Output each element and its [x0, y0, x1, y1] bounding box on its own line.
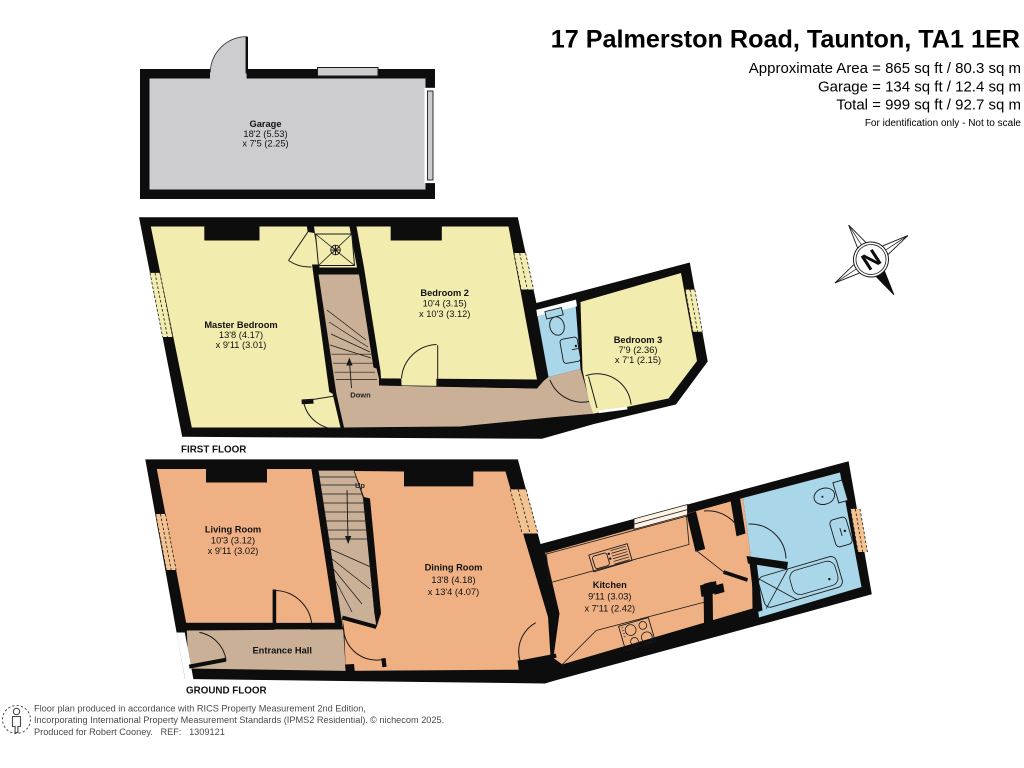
- svg-text:18'2 (5.53): 18'2 (5.53): [243, 129, 287, 139]
- svg-text:FIRST FLOOR: FIRST FLOOR: [181, 445, 246, 456]
- svg-text:10'4 (3.15): 10'4 (3.15): [423, 298, 467, 308]
- svg-text:Incorporating International Pr: Incorporating International Property Mea…: [34, 715, 368, 725]
- svg-text:Living Room: Living Room: [205, 525, 261, 535]
- svg-text:Garage = 134 sq ft / 12.4 sq m: Garage = 134 sq ft / 12.4 sq m: [818, 79, 1021, 96]
- svg-text:Bedroom 2: Bedroom 2: [420, 288, 469, 298]
- svg-text:13'8 (4.17): 13'8 (4.17): [219, 330, 263, 340]
- svg-text:Up: Up: [355, 481, 365, 490]
- svg-text:Kitchen: Kitchen: [593, 580, 627, 590]
- svg-text:Total = 999 sq ft / 92.7 sq m: Total = 999 sq ft / 92.7 sq m: [836, 97, 1021, 114]
- svg-text:Entrance Hall: Entrance Hall: [252, 646, 311, 656]
- svg-text:9'11 (3.03): 9'11 (3.03): [588, 592, 631, 602]
- svg-text:7'9 (2.36): 7'9 (2.36): [619, 345, 658, 355]
- svg-text:x 9'11 (3.01): x 9'11 (3.01): [216, 340, 267, 350]
- svg-text:GROUND FLOOR: GROUND FLOOR: [186, 686, 267, 697]
- svg-text:x 10'3 (3.12): x 10'3 (3.12): [419, 309, 470, 319]
- svg-text:x 7'5 (2.25): x 7'5 (2.25): [242, 139, 288, 149]
- svg-text:x 7'11 (2.42): x 7'11 (2.42): [584, 603, 635, 613]
- svg-text:Produced for Robert Cooney.: Produced for Robert Cooney. REF: 1309121: [34, 727, 225, 737]
- svg-text:x 7'1 (2.15): x 7'1 (2.15): [615, 355, 661, 365]
- svg-text:Dining Room: Dining Room: [425, 563, 483, 573]
- svg-text:Floor plan produced in accorda: Floor plan produced in accordance with R…: [34, 704, 366, 714]
- svg-text:x 13'4 (4.07): x 13'4 (4.07): [428, 587, 479, 597]
- svg-text:x 9'11 (3.02): x 9'11 (3.02): [208, 546, 259, 556]
- svg-text:17 Palmerston Road, Taunton, T: 17 Palmerston Road, Taunton, TA1 1ER: [551, 26, 1020, 54]
- svg-text:Master Bedroom: Master Bedroom: [204, 320, 277, 330]
- svg-text:Garage: Garage: [249, 119, 281, 129]
- svg-text:Down: Down: [350, 391, 371, 400]
- svg-text:© nichecom 2025.: © nichecom 2025.: [370, 715, 444, 725]
- svg-text:10'3 (3.12): 10'3 (3.12): [211, 535, 255, 545]
- svg-text:For identification only - Not: For identification only - Not to scale: [865, 118, 1022, 129]
- svg-text:Approximate Area = 865 sq ft /: Approximate Area = 865 sq ft / 80.3 sq m: [749, 60, 1021, 77]
- svg-text:Bedroom 3: Bedroom 3: [614, 335, 663, 345]
- svg-text:13'8 (4.18): 13'8 (4.18): [431, 575, 475, 585]
